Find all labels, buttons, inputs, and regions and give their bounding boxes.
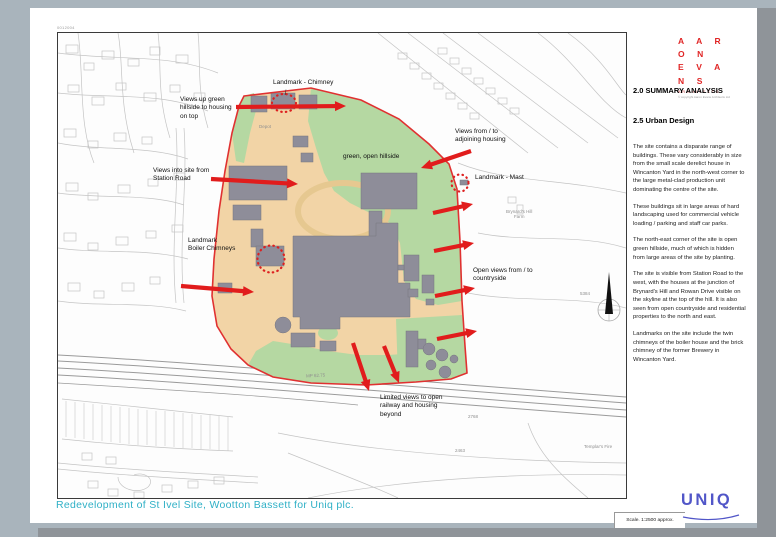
map-annotation-templars: Templar's Fire (584, 444, 612, 449)
section-heading: 2.0 SUMMARY ANALYSIS (633, 86, 723, 95)
map-annotation-2463: 2463 (455, 448, 465, 453)
map-annotation-milepost: MP 62.75 (306, 373, 325, 379)
map-label-views-adjoining: Views from / to adjoining housing (455, 128, 506, 145)
analysis-paragraphs: The site contains a disparate range of b… (633, 143, 747, 372)
map-label-open-views: Open views from / to countryside (473, 267, 533, 284)
map-label-views-up-hillside: Views up green hillside to housing on to… (180, 96, 232, 121)
sheet-ref: 0012004 (57, 25, 75, 30)
map-annotation-brynards-farm: Brynard's Hill Farm (506, 209, 532, 220)
uniq-logo: UNIQ (681, 492, 741, 527)
map-graphic (58, 33, 626, 498)
architect-logo-line2: E V A N S (678, 61, 742, 87)
scale-text: Scale. 1:2500 approx. (626, 518, 674, 523)
subsection-heading: 2.5 Urban Design (633, 116, 694, 125)
scale-note: Scale. 1:2500 approx. (614, 512, 685, 528)
architect-logo-copyright: © copyright Aaron Evans Architects Ltd (678, 95, 738, 99)
map-label-green-hillside: green, open hillside (343, 153, 399, 161)
page-shadow-right (757, 8, 776, 537)
site-plan-map: Scale. 1:2500 approx. (57, 32, 627, 499)
map-annotation-depot: Depot (259, 124, 271, 129)
map-label-landmark-boiler: Landmark Boiler Chimneys (188, 237, 235, 254)
project-title: Redevelopment of St Ivel Site, Wootton B… (56, 499, 354, 511)
map-annotation-2768: 2768 (468, 414, 478, 419)
map-label-limited-views: Limited views to open railway and housin… (380, 394, 443, 419)
north-arrow-icon (598, 272, 620, 321)
map-label-landmark-chimney: Landmark - Chimney (273, 79, 333, 87)
report-sheet: 0012004 (0, 0, 776, 537)
map-label-views-into-site: Views into site from Station Road (153, 167, 209, 184)
uniq-logo-swoosh (681, 514, 741, 522)
map-label-landmark-mast: Landmark - Mast (475, 174, 524, 182)
architect-logo-line1: A A R O N (678, 35, 742, 61)
map-annotation-5384: 5384 (580, 291, 590, 296)
uniq-logo-text: UNIQ (681, 492, 741, 509)
page-shadow-bottom (38, 528, 776, 537)
